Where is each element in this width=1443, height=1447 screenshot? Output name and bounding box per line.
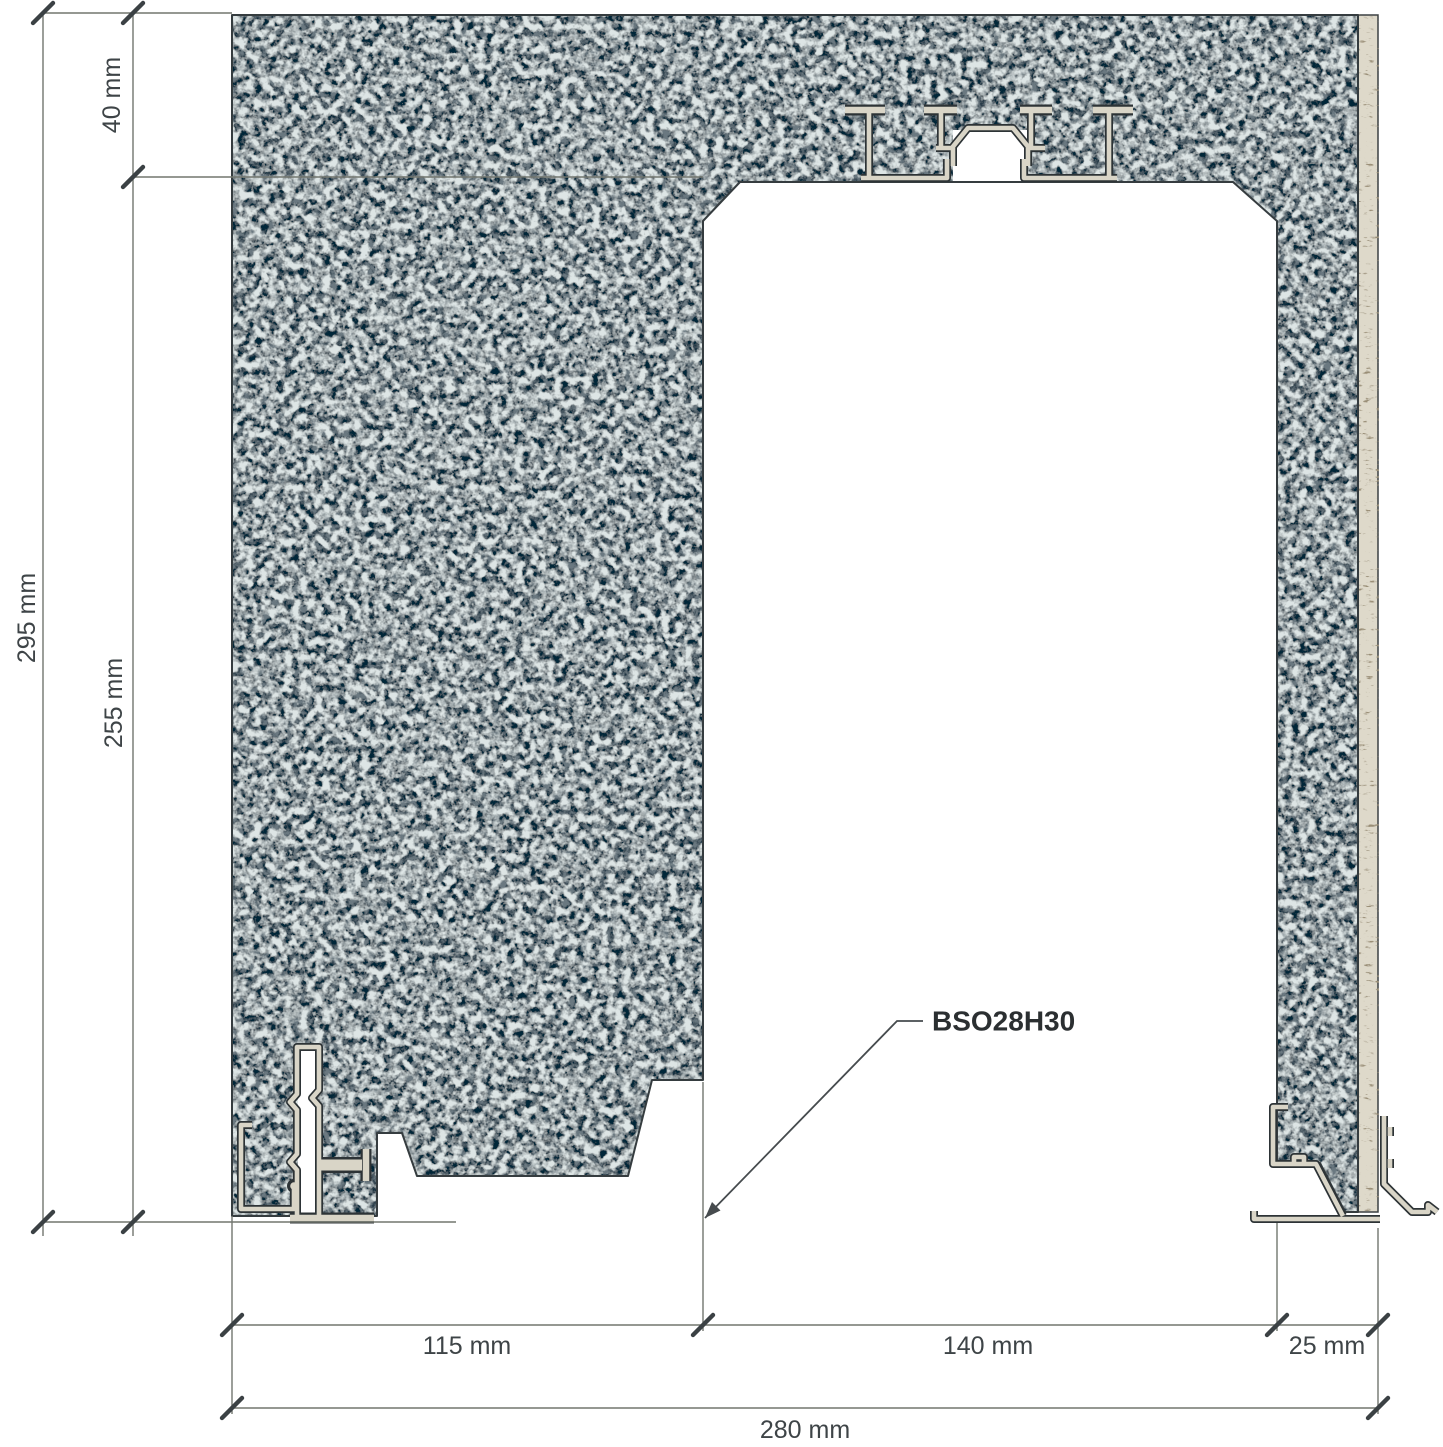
technical-drawing-canvas: 40 mm 295 mm 255 mm 115 mm 140 mm 25 mm … [0,0,1443,1447]
sheathing-board-strip [1358,15,1378,1212]
pocket-door-section-drawing: 40 mm 295 mm 255 mm 115 mm 140 mm 25 mm … [0,0,1443,1447]
masonry-body [232,15,1378,1216]
dim-overall-width: 280 mm [760,1416,850,1444]
dim-top-band: 40 mm [98,57,126,133]
masonry-texture [232,15,1358,1216]
dim-overall-height: 295 mm [13,573,41,663]
product-label: BSO28H30 [932,1006,1075,1037]
dim-opening-height: 255 mm [100,658,128,748]
label-leader [705,1021,923,1218]
dim-opening-width: 140 mm [943,1332,1033,1360]
dim-right-wall: 25 mm [1289,1332,1365,1360]
dim-left-wall: 115 mm [423,1332,511,1360]
